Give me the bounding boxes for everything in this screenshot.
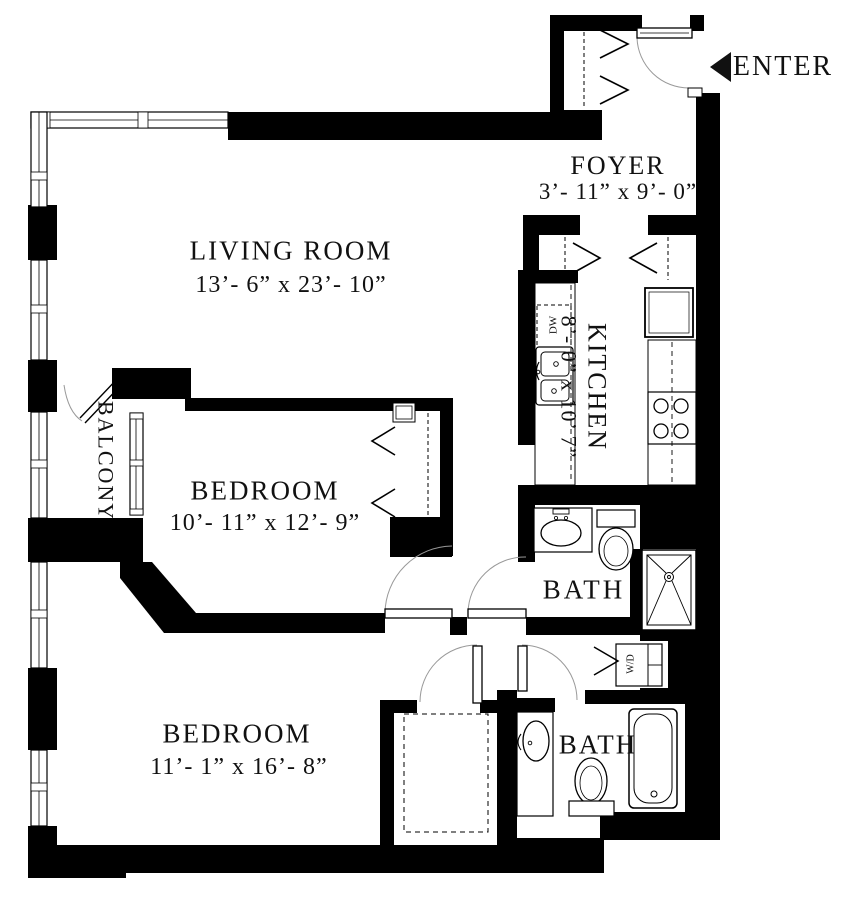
bath-1-door [468, 557, 526, 618]
room-label-foyer: FOYER [570, 151, 665, 181]
window-left-2 [31, 260, 47, 360]
bedroom-2-closet [404, 714, 488, 832]
room-label-living-room: LIVING ROOM [190, 235, 393, 266]
toilet-icon [569, 758, 614, 816]
room-dims-foyer: 3’- 11” x 9’- 0” [539, 179, 697, 205]
bath-2-door [518, 645, 577, 700]
floor-plan-drawing [0, 0, 841, 921]
room-dims-bedroom-2: 11’- 1” x 16’- 8” [150, 754, 327, 782]
window-left-5 [31, 750, 47, 826]
washer-dryer-label: W/D [625, 654, 637, 673]
hall-closets [565, 237, 668, 280]
refrigerator-icon [645, 288, 693, 337]
room-label-bath-1: BATH [543, 574, 626, 605]
room-dims-kitchen: 8’- 0” x 10’ 7” [556, 316, 581, 459]
window-balcony [130, 413, 143, 515]
foyer-closet [584, 30, 628, 108]
entry-door [637, 28, 702, 97]
room-dims-living-room: 13’- 6” x 23’- 10” [195, 272, 386, 300]
room-label-bedroom-2: BEDROOM [162, 718, 311, 749]
closet-door-chevron [573, 243, 600, 273]
window-top [31, 112, 228, 128]
closet-door-chevron [372, 489, 395, 517]
shower-icon [642, 550, 696, 630]
closet-door-chevron [600, 30, 628, 58]
window-left-4 [31, 562, 47, 668]
room-label-bedroom-1: BEDROOM [190, 475, 339, 506]
bedroom-2-door [420, 645, 482, 703]
closet-door-chevron [630, 243, 657, 273]
room-dims-bedroom-1: 10’- 11” x 12’- 9” [170, 510, 360, 538]
dishwasher-label: DW [548, 316, 561, 334]
enter-label: ENTER [733, 51, 833, 83]
floor-plan: LIVING ROOM 13’- 6” x 23’- 10” FOYER 3’-… [0, 0, 841, 921]
bath-2-fixtures [517, 709, 677, 816]
bathroom-sink-icon [517, 712, 553, 816]
closet-door-chevron [372, 427, 395, 455]
window-left-3 [31, 412, 47, 518]
room-label-kitchen: KITCHEN [582, 316, 612, 459]
room-label-bath-2: BATH [559, 729, 638, 760]
room-label-balcony: BALCONY [93, 401, 118, 521]
enter-arrow-icon [710, 52, 731, 82]
room-label-kitchen-block: KITCHEN 8’- 0” x 10’ 7” [556, 316, 611, 459]
bathroom-sink-icon [534, 508, 592, 552]
toilet-icon [597, 510, 635, 570]
window-left-1 [31, 112, 47, 207]
closet-door-chevron [600, 76, 628, 104]
